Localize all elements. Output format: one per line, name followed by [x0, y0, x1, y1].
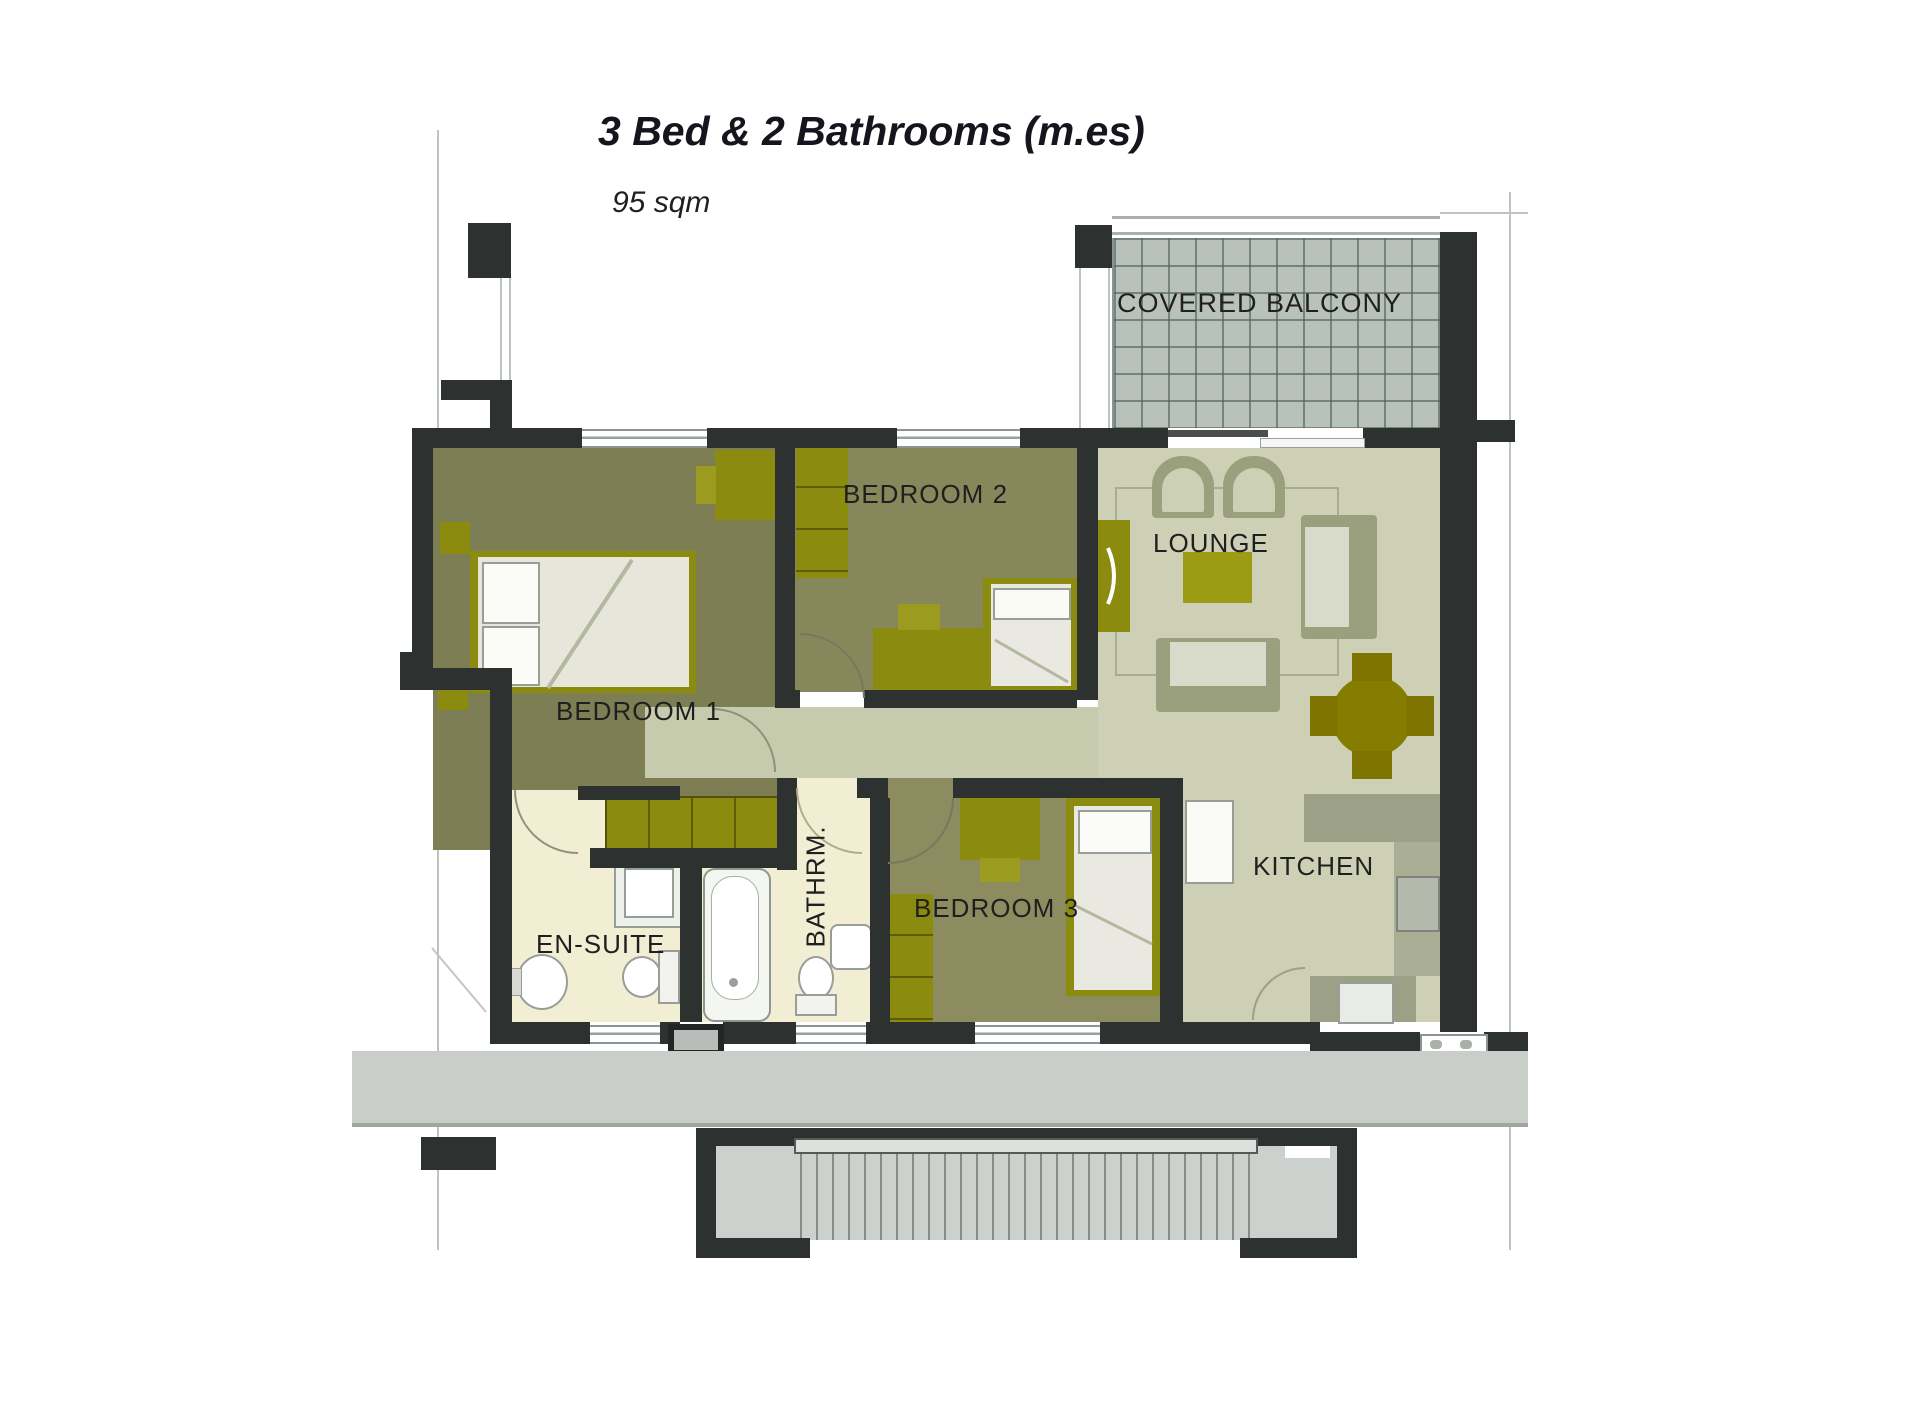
- bedroom1-door-arc: [712, 709, 775, 772]
- label-ensuite: EN-SUITE: [536, 929, 665, 960]
- label-bedroom3: BEDROOM 3: [914, 893, 1079, 924]
- plan-detail-lines: [0, 0, 1920, 1421]
- tv-screen-curve: [1108, 548, 1114, 604]
- floor-plan-page: 3 Bed & 2 Bathrooms (m.es) 95 sqm: [0, 0, 1920, 1421]
- bedroom2-door-arc: [800, 634, 864, 698]
- bedroom3-bed-throw-line: [1076, 906, 1152, 944]
- label-lounge: LOUNGE: [1153, 528, 1269, 559]
- bedroom1-bed-throw-line: [548, 560, 632, 688]
- label-kitchen: KITCHEN: [1253, 851, 1374, 882]
- kitchen-door-arc: [1253, 968, 1305, 1020]
- label-bedroom1: BEDROOM 1: [556, 696, 721, 727]
- bedroom2-bed-throw-line: [995, 640, 1068, 682]
- ensuite-door-arc: [515, 790, 578, 853]
- label-covered-balcony: COVERED BALCONY: [1117, 288, 1402, 319]
- exterior-leader-line: [432, 948, 486, 1012]
- bedroom3-door-arc: [888, 798, 953, 863]
- label-bedroom2: BEDROOM 2: [843, 479, 1008, 510]
- label-bathroom: BATHRM.: [801, 828, 832, 948]
